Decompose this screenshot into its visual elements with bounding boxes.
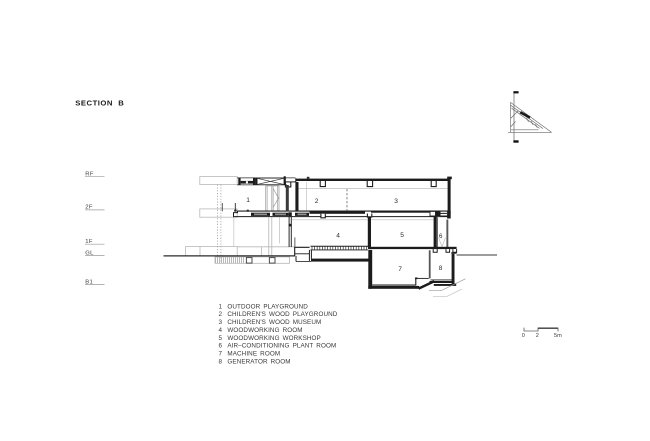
svg-text:AIR–CONDITIONING PLANT ROOM: AIR–CONDITIONING PLANT ROOM bbox=[227, 343, 336, 350]
svg-text:SECTION B: SECTION B bbox=[75, 98, 124, 107]
svg-text:2: 2 bbox=[315, 198, 319, 205]
svg-text:5m: 5m bbox=[554, 333, 562, 339]
svg-text:7: 7 bbox=[219, 351, 223, 358]
svg-text:WOODWORKING WORKSHOP: WOODWORKING WORKSHOP bbox=[227, 335, 320, 342]
svg-text:OUTDOOR PLAYGROUND: OUTDOOR PLAYGROUND bbox=[227, 303, 308, 310]
svg-text:8: 8 bbox=[439, 265, 443, 272]
svg-text:3: 3 bbox=[219, 319, 223, 326]
svg-text:3: 3 bbox=[394, 198, 398, 205]
svg-text:5: 5 bbox=[400, 232, 404, 239]
svg-text:5: 5 bbox=[219, 335, 223, 342]
svg-text:6: 6 bbox=[219, 343, 223, 350]
svg-text:4: 4 bbox=[336, 232, 340, 239]
svg-text:MACHINE ROOM: MACHINE ROOM bbox=[227, 351, 280, 358]
svg-text:7: 7 bbox=[398, 266, 402, 273]
svg-text:1: 1 bbox=[219, 303, 223, 310]
svg-text:2: 2 bbox=[219, 311, 223, 318]
svg-text:CHILDREN'S WOOD PLAYGROUND: CHILDREN'S WOOD PLAYGROUND bbox=[227, 311, 337, 318]
svg-text:2: 2 bbox=[536, 333, 539, 339]
svg-text:8: 8 bbox=[219, 358, 223, 365]
svg-text:CHILDREN'S WOOD MUSEUM: CHILDREN'S WOOD MUSEUM bbox=[227, 319, 321, 326]
svg-text:1: 1 bbox=[246, 197, 250, 204]
svg-text:GENERATOR ROOM: GENERATOR ROOM bbox=[227, 358, 290, 365]
svg-text:WOODWORKING ROOM: WOODWORKING ROOM bbox=[227, 327, 302, 334]
svg-text:0: 0 bbox=[522, 333, 525, 339]
svg-text:4: 4 bbox=[219, 327, 223, 334]
svg-text:6: 6 bbox=[439, 233, 443, 240]
